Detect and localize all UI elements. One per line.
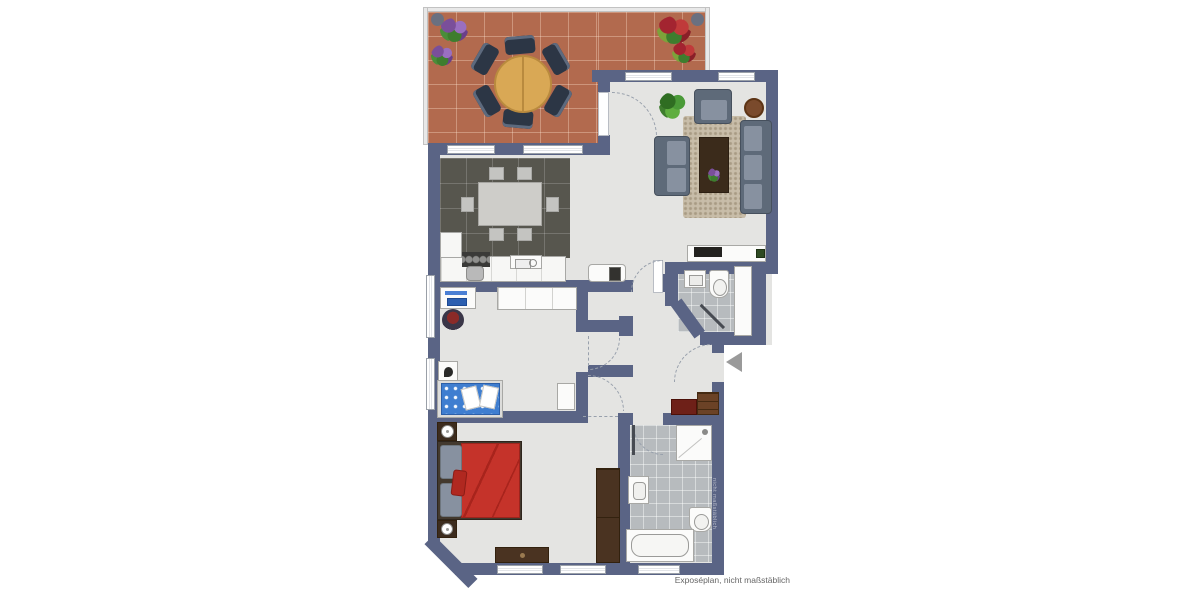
living-loveseat [654, 136, 690, 196]
terrace-door-leaf [598, 92, 609, 136]
bathtub [626, 529, 694, 562]
desk-chair [442, 309, 464, 331]
terrace-post-right [691, 13, 704, 26]
wc-toilet [709, 270, 729, 298]
coffee-table-decor [708, 168, 720, 182]
terrace-railing-right [705, 7, 710, 72]
nightstand-lamp [441, 425, 454, 438]
living-armchair-top [694, 89, 732, 124]
window-bedroom-2 [560, 565, 606, 574]
office-wardrobe [497, 287, 577, 310]
living-plant [659, 92, 686, 119]
entrance-arrow-icon [726, 352, 742, 372]
nightstand-lamp [441, 523, 453, 535]
window-office-1 [426, 275, 435, 338]
terrace-railing-top [424, 7, 710, 12]
wall-vestibule-post [619, 316, 633, 336]
dining-chair [546, 197, 559, 212]
wall-hall-post [663, 274, 677, 292]
kitchen-counter-left [440, 232, 462, 258]
bedroom-wardrobe [596, 468, 620, 563]
window-bathroom [638, 565, 680, 574]
office-nightstand [438, 361, 458, 381]
bed-mattress-red [461, 443, 520, 518]
window-bedroom-1 [497, 565, 543, 574]
dining-chair [461, 197, 474, 212]
plan-caption: Exposéplan, nicht maßstäblich [600, 575, 790, 585]
window-office-2 [426, 358, 435, 410]
window-living-2 [718, 72, 755, 81]
hall-dresser [697, 392, 719, 415]
trash-bin [466, 266, 484, 281]
window-dining-1 [447, 145, 495, 154]
flower-pot [672, 42, 696, 63]
dining-chair [517, 228, 532, 241]
bathroom-sink [628, 476, 649, 504]
desk [440, 287, 476, 309]
floorplan-canvas: nicht maßstäblich Exposéplan, nicht maßs… [0, 0, 1200, 600]
wall-watermark: nicht maßstäblich [711, 478, 717, 540]
office-cabinet [557, 383, 575, 410]
living-coffee-table [699, 137, 729, 193]
shower [676, 425, 712, 461]
tv-unit [694, 247, 722, 257]
office-doorway-dashes [588, 336, 589, 366]
terrace-chair [504, 35, 535, 56]
stove [462, 252, 490, 267]
kitchen-sink [510, 255, 542, 269]
shoe-cabinet [671, 399, 697, 415]
dining-chair [489, 167, 504, 180]
window-dining-2 [523, 145, 583, 154]
bedroom-dresser [495, 547, 549, 563]
window-living-1 [625, 72, 672, 81]
living-sofa [740, 120, 772, 214]
terrace-railing-left [423, 7, 428, 145]
flower-pot [657, 16, 691, 44]
flower-pot [431, 45, 453, 66]
utility-column [734, 266, 752, 336]
wall-vestibule-v [576, 292, 588, 332]
wc-sink [684, 270, 706, 288]
wall-living-left-lower [598, 135, 610, 155]
bedroom-doorway-dashes [583, 416, 618, 417]
wall-wc-bottom [700, 332, 766, 345]
dining-chair [489, 228, 504, 241]
dining-table [478, 182, 542, 226]
wall-entrance-post [712, 332, 724, 353]
dining-chair [517, 167, 532, 180]
sideboard-decor [756, 249, 765, 258]
flower-pot [440, 18, 468, 42]
bathroom-door-leaf [632, 425, 635, 455]
living-side-table [744, 98, 764, 118]
washing-machine [588, 264, 626, 282]
kitchen-counter [440, 256, 566, 282]
terrace-round-table [494, 55, 552, 113]
